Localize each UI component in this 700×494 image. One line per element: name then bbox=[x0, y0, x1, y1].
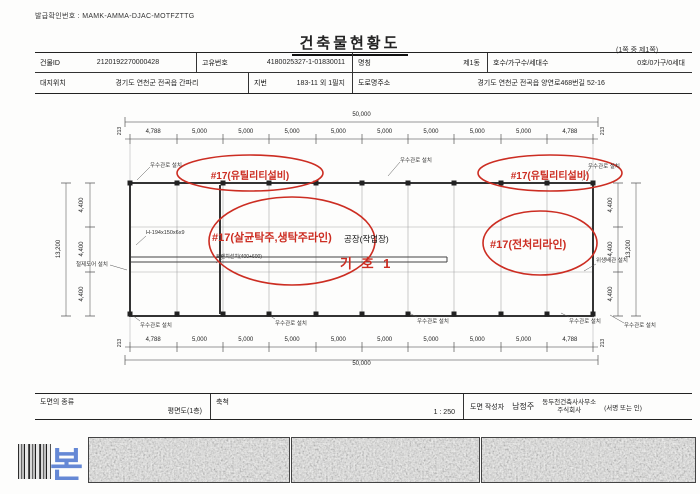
dim-left-bay: 4,400 bbox=[79, 197, 85, 212]
dim-top-bay: 5,000 bbox=[361, 129, 407, 135]
footer-table: 도면의 종류 평면도(1층) 축척 1 : 250 도면 작성자 남정주 동두천… bbox=[35, 393, 692, 420]
dim-left-bay: 4,400 bbox=[79, 286, 85, 301]
cell-drawing-type: 도면의 종류 평면도(1층) bbox=[35, 394, 210, 419]
dim-top-bay: 5,000 bbox=[408, 129, 454, 135]
cell-author: 도면 작성자 남정주 동두천건축사사무소 주식회사 (서명 또는 인) bbox=[463, 394, 692, 419]
dim-top-bay: 4,788 bbox=[547, 129, 593, 135]
trench-label: 트렌치설치(400+600) bbox=[216, 253, 262, 260]
dim-bottom-bay: 5,000 bbox=[315, 337, 361, 343]
annotation-takju-line: #17(살균탁주,생탁주라인) bbox=[212, 229, 332, 245]
dim-right-bay: 4,400 bbox=[608, 286, 614, 301]
annotation-pretreatment-line: #17(전처리라인) bbox=[490, 236, 566, 252]
annotation-symbol-code: 기 호 1 bbox=[340, 253, 393, 272]
dim-right-bay: 4,400 bbox=[608, 197, 614, 212]
downpipe-label: 우수관로 설치 bbox=[400, 156, 432, 164]
dim-top-bay: 5,000 bbox=[223, 129, 269, 135]
hbeam-label: H-194x150x6x9 bbox=[146, 230, 185, 236]
dim-row-bottom: 4,788 5,000 5,000 5,000 5,000 5,000 5,00… bbox=[130, 337, 593, 343]
security-noise-strip bbox=[291, 437, 480, 483]
cell-scale: 축척 1 : 250 bbox=[210, 394, 463, 419]
author-name: 남정주 bbox=[512, 401, 534, 412]
dim-top-bay: 5,000 bbox=[500, 129, 546, 135]
factory-room-label: 공장(작업장) bbox=[344, 233, 389, 245]
dim-top-bay: 5,000 bbox=[269, 129, 315, 135]
dim-bottom-bay: 5,000 bbox=[361, 337, 407, 343]
dim-bottom-bay: 5,000 bbox=[454, 337, 500, 343]
dim-bottom-bay: 4,788 bbox=[130, 337, 176, 343]
downpipe-label: 우수관로 설치 bbox=[569, 317, 601, 325]
dim-top-bay: 5,000 bbox=[176, 129, 222, 135]
steel-door-label: 철제도어 설치 bbox=[76, 260, 108, 268]
dim-edge: 213 bbox=[600, 127, 606, 135]
annotation-utility-right: #17(유틸리티설비) bbox=[478, 167, 622, 182]
dim-left-bay: 4,400 bbox=[79, 241, 85, 256]
dim-bottom-bay: 5,000 bbox=[269, 337, 315, 343]
dim-overall-width-top: 50,000 bbox=[125, 112, 598, 118]
author-label: 도면 작성자 bbox=[470, 402, 504, 412]
original-watermark-char: 본 bbox=[50, 436, 83, 488]
dim-edge: 213 bbox=[600, 339, 606, 347]
scale-label: 축척 bbox=[216, 397, 229, 407]
dim-edge: 213 bbox=[117, 339, 123, 347]
dim-bottom-bay: 5,000 bbox=[223, 337, 269, 343]
annotation-utility-left: #17(유틸리티설비) bbox=[177, 167, 323, 182]
dim-bottom-bay: 5,000 bbox=[408, 337, 454, 343]
downpipe-label: 우수관로 설치 bbox=[417, 317, 449, 325]
office-line2: 주식회사 bbox=[542, 407, 596, 414]
dim-right-bay: 4,400 bbox=[608, 241, 614, 256]
document-sheet: 발급확인번호 : MAMK-AMMA-DJAC-MOTFZTTG 건축물현황도 … bbox=[0, 0, 700, 494]
barcode-block bbox=[18, 444, 51, 479]
dim-overall-width-bottom: 50,000 bbox=[125, 361, 598, 367]
dim-top-bay: 5,000 bbox=[454, 129, 500, 135]
scale-value: 1 : 250 bbox=[434, 409, 455, 416]
office-line1: 동두천건축사사무소 bbox=[542, 399, 596, 406]
downpipe-label: 우수관로 설치 bbox=[275, 319, 307, 327]
dim-top-bay: 4,788 bbox=[130, 129, 176, 135]
dim-bottom-bay: 4,788 bbox=[547, 337, 593, 343]
downpipe-label: 우수관로 설치 bbox=[624, 321, 656, 329]
dim-bottom-bay: 5,000 bbox=[500, 337, 546, 343]
security-noise-strip bbox=[88, 437, 290, 483]
dim-bottom-bay: 5,000 bbox=[176, 337, 222, 343]
security-noise-strip bbox=[481, 437, 696, 483]
downpipe-label: 우수관로 설치 bbox=[140, 321, 172, 329]
author-office: 동두천건축사사무소 주식회사 bbox=[542, 399, 596, 414]
signature-note: (서명 또는 인) bbox=[604, 402, 642, 412]
dim-top-bay: 5,000 bbox=[315, 129, 361, 135]
drawing-type-value: 평면도(1층) bbox=[168, 406, 202, 416]
dim-overall-height-left: 13,200 bbox=[56, 240, 62, 258]
dim-edge: 213 bbox=[117, 127, 123, 135]
drawing-type-label: 도면의 종류 bbox=[40, 397, 74, 407]
sanitary-pipe-label: 위생배관 설치 bbox=[596, 256, 628, 264]
dim-row-top: 4,788 5,000 5,000 5,000 5,000 5,000 5,00… bbox=[130, 129, 593, 135]
